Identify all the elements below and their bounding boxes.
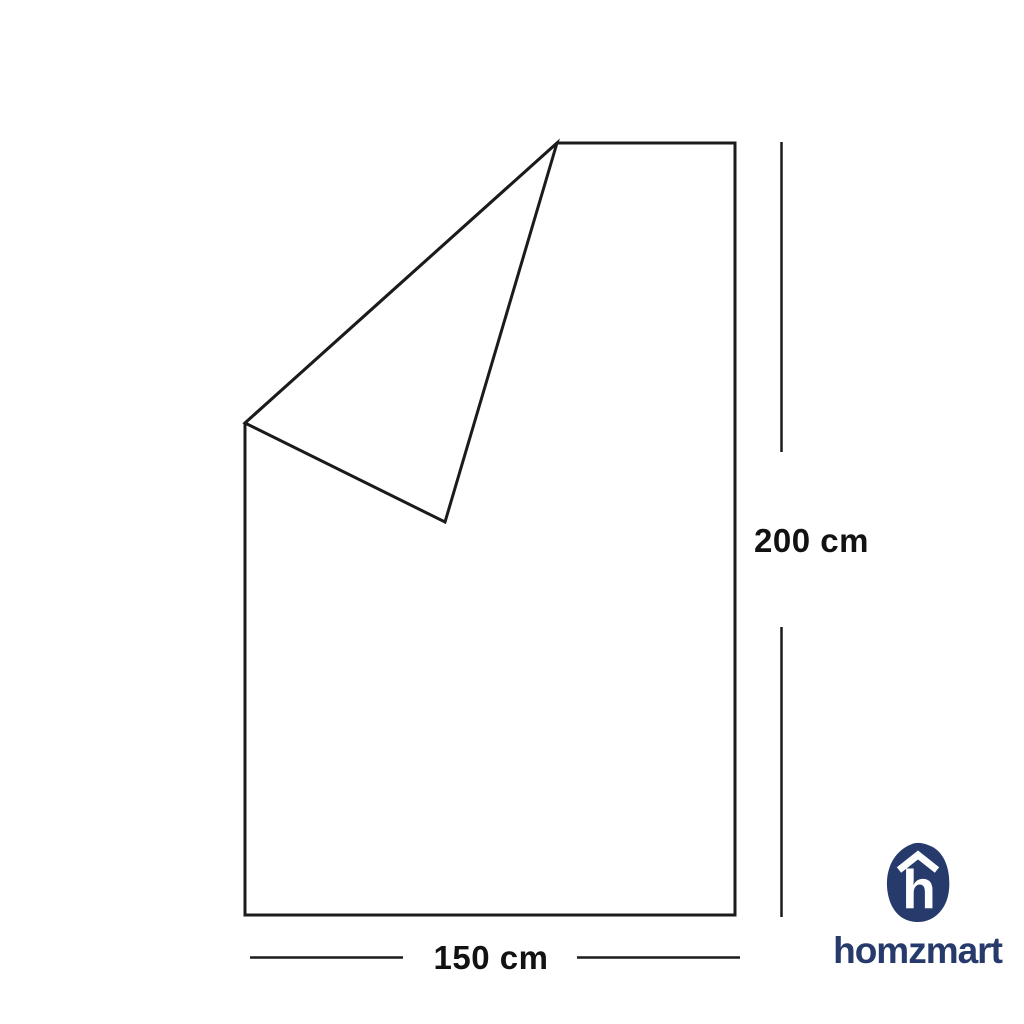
house-h-blob-icon: h <box>883 841 953 925</box>
homzmart-logo: h homzmart <box>825 841 1010 976</box>
height-dimension-label: 200 cm <box>754 524 869 557</box>
product-dimension-diagram: 200 cm 150 cm h homzmart <box>0 0 1024 1024</box>
width-dimension-label: 150 cm <box>420 941 562 974</box>
logo-monogram: h <box>902 858 936 920</box>
brand-wordmark: homzmart <box>825 932 1010 969</box>
